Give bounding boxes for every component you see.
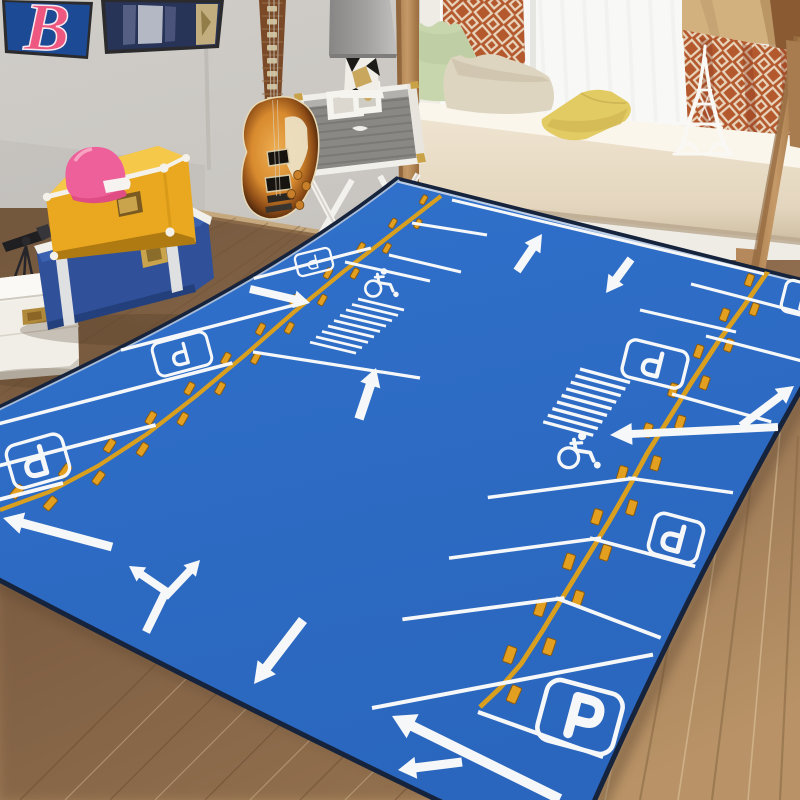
svg-text:B: B: [22, 0, 71, 66]
